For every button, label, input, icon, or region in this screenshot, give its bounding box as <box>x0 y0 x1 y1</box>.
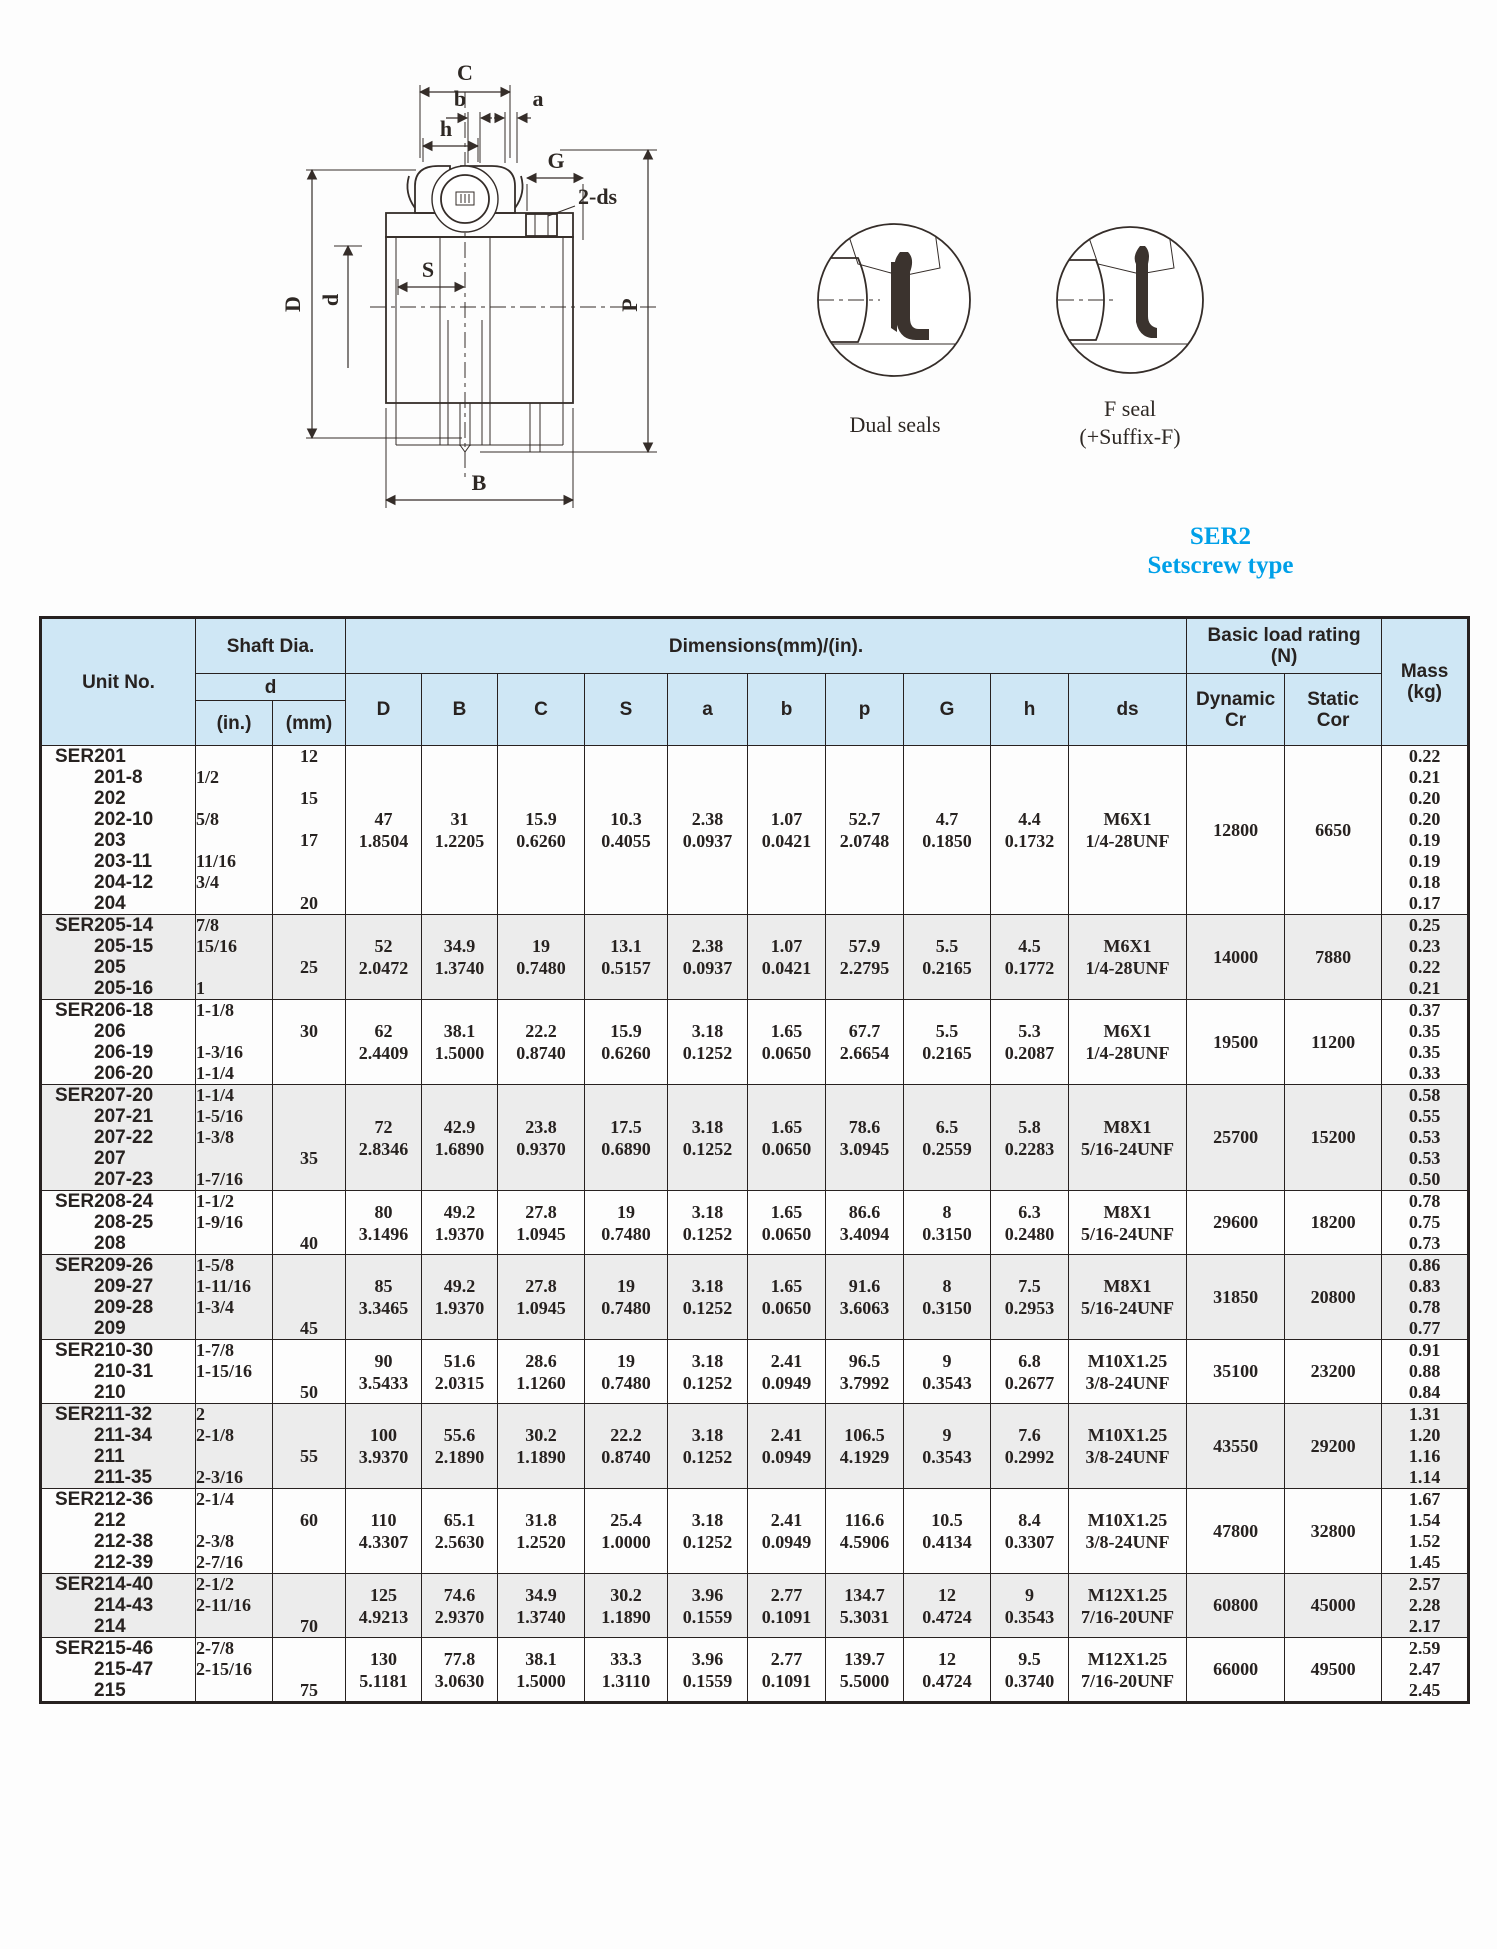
dim-value: 2.38 <box>668 935 747 957</box>
cell-line: 0.20 <box>1382 788 1467 809</box>
dynamic-cr-cell: 43550 <box>1187 1404 1285 1489</box>
cell-line <box>273 1552 345 1573</box>
dim-cell-p: 57.92.2795 <box>826 915 904 1000</box>
dim-cell-p: 96.53.7992 <box>826 1340 904 1404</box>
dim-label-2ds: 2-ds <box>578 184 618 209</box>
series-subtitle: Setscrew type <box>1098 551 1343 580</box>
table-header: Unit No. Shaft Dia. Dimensions(mm)/(in).… <box>41 618 1469 746</box>
cell-line: 206-19 <box>42 1042 195 1063</box>
dim-value: 2.1890 <box>422 1446 497 1468</box>
cell-line: 207-22 <box>42 1127 195 1148</box>
dim-value: 0.3543 <box>904 1446 990 1468</box>
cell-line: 15/16 <box>196 936 272 957</box>
dim-cell-h: 4.40.1732 <box>991 746 1069 915</box>
dynamic-line1: Dynamic <box>1187 689 1284 710</box>
cell-line <box>273 1169 345 1190</box>
dim-cell-G: 5.50.2165 <box>904 1000 991 1085</box>
dim-value: 15.9 <box>498 808 584 830</box>
dim-value: 3.0945 <box>826 1138 903 1160</box>
cell-line <box>196 1021 272 1042</box>
dim-value: 1/4-28UNF <box>1069 830 1186 852</box>
static-cor-cell: 45000 <box>1285 1574 1382 1638</box>
dynamic-cr-cell: 19500 <box>1187 1000 1285 1085</box>
dim-value: 0.7480 <box>585 1223 667 1245</box>
dim-cell-p: 134.75.3031 <box>826 1574 904 1638</box>
cell-line <box>273 1659 345 1680</box>
shaft-dia-mm-cell: 45 <box>273 1255 346 1340</box>
dim-value: 2.5630 <box>422 1531 497 1553</box>
dim-value: 0.1252 <box>668 1042 747 1064</box>
dim-value: 80 <box>346 1201 421 1223</box>
dim-cell-a: 3.960.1559 <box>668 1638 748 1703</box>
dim-cell-D: 471.8504 <box>346 746 422 915</box>
dim-cell-h: 5.30.2087 <box>991 1000 1069 1085</box>
table-row: SER212-36212212-38212-392-1/42-3/82-7/16… <box>41 1489 1469 1574</box>
dim-value: 55.6 <box>422 1424 497 1446</box>
dim-value: 9 <box>904 1350 990 1372</box>
cell-line <box>273 1063 345 1084</box>
cell-line: 20 <box>273 893 345 914</box>
mass-cell: 0.910.880.84 <box>1382 1340 1469 1404</box>
col-header-G: G <box>904 674 991 746</box>
dim-value: 5.8 <box>991 1116 1068 1138</box>
dim-value: 3/8-24UNF <box>1069 1446 1186 1468</box>
dim-value: 38.1 <box>422 1020 497 1042</box>
dim-value: 0.5157 <box>585 957 667 979</box>
dim-value: 3.6063 <box>826 1297 903 1319</box>
dim-value: 0.0937 <box>668 957 747 979</box>
cell-line: 204 <box>42 893 195 914</box>
dim-value: M8X1 <box>1069 1275 1186 1297</box>
dynamic-cr-cell: 47800 <box>1187 1489 1285 1574</box>
dim-value: 0.4724 <box>904 1606 990 1628</box>
cell-line: 1.54 <box>1382 1510 1467 1531</box>
static-cor-cell: 15200 <box>1285 1085 1382 1191</box>
dim-cell-B: 49.21.9370 <box>422 1191 498 1255</box>
cell-line <box>273 1340 345 1361</box>
cell-line: 40 <box>273 1233 345 1254</box>
cell-line: 1-1/4 <box>196 1063 272 1084</box>
dim-value: 3/8-24UNF <box>1069 1372 1186 1394</box>
dim-cell-S: 190.7480 <box>585 1191 668 1255</box>
dim-value: 0.2165 <box>904 957 990 979</box>
cell-line: 2.47 <box>1382 1659 1467 1680</box>
dim-value: 2.77 <box>748 1584 825 1606</box>
dim-value: 23.8 <box>498 1116 584 1138</box>
cell-line: 0.86 <box>1382 1255 1467 1276</box>
mass-cell: 0.370.350.350.33 <box>1382 1000 1469 1085</box>
cell-line: 205-16 <box>42 978 195 999</box>
shaft-dia-in-cell: 1-1/81-3/161-1/4 <box>196 1000 273 1085</box>
dim-value: 2.9370 <box>422 1606 497 1628</box>
dim-value: 0.0650 <box>748 1042 825 1064</box>
dim-cell-b: 2.770.1091 <box>748 1638 826 1703</box>
spec-table-body: SER201201-8202202-10203203-11204-122041/… <box>41 746 1469 1703</box>
dim-cell-h: 6.30.2480 <box>991 1191 1069 1255</box>
cell-line <box>273 1574 345 1595</box>
dim-value: 1.5000 <box>422 1042 497 1064</box>
dim-value: 3.9370 <box>346 1446 421 1468</box>
dim-value: 1.07 <box>748 808 825 830</box>
dim-value: 85 <box>346 1275 421 1297</box>
dim-cell-D: 1003.9370 <box>346 1404 422 1489</box>
cell-line <box>196 893 272 914</box>
cell-line <box>273 1000 345 1021</box>
cell-line: 212-38 <box>42 1531 195 1552</box>
cell-line: 0.83 <box>1382 1276 1467 1297</box>
series-title: SER2 <box>1098 522 1343 551</box>
shaft-dia-mm-cell: 12151720 <box>273 746 346 915</box>
cell-line: 1.52 <box>1382 1531 1467 1552</box>
dim-value: 3.18 <box>668 1201 747 1223</box>
dim-cell-p: 116.64.5906 <box>826 1489 904 1574</box>
dim-value: 0.0421 <box>748 830 825 852</box>
dim-value: 0.1091 <box>748 1606 825 1628</box>
dim-cell-p: 91.63.6063 <box>826 1255 904 1340</box>
table-row: SER210-30210-312101-7/81-15/1650903.5433… <box>41 1340 1469 1404</box>
dim-value: 1.9370 <box>422 1297 497 1319</box>
dim-cell-h: 4.50.1772 <box>991 915 1069 1000</box>
dim-value: 3.18 <box>668 1509 747 1531</box>
static-cor-cell: 6650 <box>1285 746 1382 915</box>
cell-line: 214-43 <box>42 1595 195 1616</box>
col-header-h: h <box>991 674 1069 746</box>
dim-cell-b: 1.650.0650 <box>748 1255 826 1340</box>
dim-value: M10X1.25 <box>1069 1350 1186 1372</box>
cell-line: 211 <box>42 1446 195 1467</box>
dim-cell-ds: M10X1.253/8-24UNF <box>1069 1340 1187 1404</box>
dim-cell-D: 1305.1181 <box>346 1638 422 1703</box>
dim-cell-a: 3.180.1252 <box>668 1000 748 1085</box>
dim-value: 125 <box>346 1584 421 1606</box>
dim-value: 27.8 <box>498 1275 584 1297</box>
dim-value: 5.5 <box>904 935 990 957</box>
table-row: SER208-24208-252081-1/21-9/1640803.14964… <box>41 1191 1469 1255</box>
dim-value: 2.41 <box>748 1424 825 1446</box>
cell-line: 30 <box>273 1021 345 1042</box>
col-header-dimensions: Dimensions(mm)/(in). <box>346 618 1187 674</box>
cell-line: 203 <box>42 830 195 851</box>
dim-label-h: h <box>440 116 452 141</box>
dim-cell-C: 27.81.0945 <box>498 1255 585 1340</box>
cell-line: 1-1/8 <box>196 1000 272 1021</box>
cell-line <box>273 1489 345 1510</box>
shaft-dia-in-cell: 7/815/161 <box>196 915 273 1000</box>
dim-cell-S: 190.7480 <box>585 1255 668 1340</box>
cell-line <box>273 809 345 830</box>
cell-line: SER210-30 <box>42 1340 195 1361</box>
cell-line: 45 <box>273 1318 345 1339</box>
dual-seals-caption: Dual seals <box>849 412 940 437</box>
dim-cell-C: 15.90.6260 <box>498 746 585 915</box>
dim-value: 5/16-24UNF <box>1069 1297 1186 1319</box>
unit-no-cell: SER210-30210-31210 <box>41 1340 196 1404</box>
dim-cell-b: 2.410.0949 <box>748 1340 826 1404</box>
dim-cell-a: 2.380.0937 <box>668 915 748 1000</box>
static-cor-cell: 49500 <box>1285 1638 1382 1703</box>
cell-line: 0.35 <box>1382 1021 1467 1042</box>
dim-value: 0.2165 <box>904 1042 990 1064</box>
dim-cell-h: 5.80.2283 <box>991 1085 1069 1191</box>
cell-line: 202-10 <box>42 809 195 830</box>
dim-cell-D: 722.8346 <box>346 1085 422 1191</box>
dim-value: 4.1929 <box>826 1446 903 1468</box>
dim-value: 12 <box>904 1584 990 1606</box>
dim-value: 38.1 <box>498 1648 584 1670</box>
dim-value: 1.1260 <box>498 1372 584 1394</box>
cell-line: 215 <box>42 1680 195 1701</box>
cell-line: 50 <box>273 1382 345 1403</box>
dim-value: 4.7 <box>904 808 990 830</box>
dim-cell-B: 65.12.5630 <box>422 1489 498 1574</box>
dynamic-cr-cell: 66000 <box>1187 1638 1285 1703</box>
cell-line: 209 <box>42 1318 195 1339</box>
dim-cell-h: 7.50.2953 <box>991 1255 1069 1340</box>
dim-value: 7/16-20UNF <box>1069 1670 1186 1692</box>
dim-cell-h: 8.40.3307 <box>991 1489 1069 1574</box>
dim-value: 22.2 <box>498 1020 584 1042</box>
dim-cell-S: 25.41.0000 <box>585 1489 668 1574</box>
cell-line: 214 <box>42 1616 195 1637</box>
col-header-B: B <box>422 674 498 746</box>
cell-line: 0.88 <box>1382 1361 1467 1382</box>
inner-ring-cylinder <box>386 237 573 452</box>
dim-value: M8X1 <box>1069 1201 1186 1223</box>
shaft-dia-in-cell: 1-1/21-9/16 <box>196 1191 273 1255</box>
dim-cell-a: 3.180.1252 <box>668 1085 748 1191</box>
shaft-dia-mm-cell: 25 <box>273 915 346 1000</box>
dim-cell-ds: M10X1.253/8-24UNF <box>1069 1404 1187 1489</box>
dim-value: 1.3740 <box>498 1606 584 1628</box>
dim-cell-S: 33.31.3110 <box>585 1638 668 1703</box>
col-header-p: p <box>826 674 904 746</box>
cell-line <box>273 978 345 999</box>
dim-value: 0.0949 <box>748 1446 825 1468</box>
dim-label-D: D <box>280 296 305 312</box>
dim-value: 74.6 <box>422 1584 497 1606</box>
cell-line <box>273 851 345 872</box>
dim-value: 19 <box>585 1201 667 1223</box>
dim-cell-S: 30.21.1890 <box>585 1574 668 1638</box>
dim-value: M8X1 <box>1069 1116 1186 1138</box>
dim-cell-G: 6.50.2559 <box>904 1085 991 1191</box>
static-cor-cell: 11200 <box>1285 1000 1382 1085</box>
dim-value: 6.3 <box>991 1201 1068 1223</box>
cell-line: SER208-24 <box>42 1191 195 1212</box>
cell-line <box>273 1085 345 1106</box>
cell-line: 204-12 <box>42 872 195 893</box>
dim-value: 30.2 <box>498 1424 584 1446</box>
load-rating-line1: Basic load rating <box>1187 625 1381 646</box>
table-row: SER205-14205-15205205-167/815/16125522.0… <box>41 915 1469 1000</box>
cell-line: 1.31 <box>1382 1404 1467 1425</box>
col-header-static-cor: Static Cor <box>1285 674 1382 746</box>
col-header-mm: (mm) <box>273 701 346 746</box>
cell-line <box>273 1042 345 1063</box>
dim-cell-ds: M8X15/16-24UNF <box>1069 1191 1187 1255</box>
dim-value: 3.4094 <box>826 1223 903 1245</box>
dynamic-line2: Cr <box>1187 710 1284 731</box>
unit-no-cell: SER212-36212212-38212-39 <box>41 1489 196 1574</box>
cell-line: 212 <box>42 1510 195 1531</box>
mass-cell: 0.580.550.530.530.50 <box>1382 1085 1469 1191</box>
dim-value: 3.7992 <box>826 1372 903 1394</box>
cell-line: 209-27 <box>42 1276 195 1297</box>
dynamic-cr-cell: 60800 <box>1187 1574 1285 1638</box>
dim-label-S: S <box>422 257 434 282</box>
dim-cell-ds: M6X11/4-28UNF <box>1069 746 1187 915</box>
cell-line: SER201 <box>42 746 195 767</box>
dim-value: 5.3031 <box>826 1606 903 1628</box>
dim-value: 8 <box>904 1275 990 1297</box>
unit-no-cell: SER215-46215-47215 <box>41 1638 196 1703</box>
cell-line: SER205-14 <box>42 915 195 936</box>
dim-cell-ds: M8X15/16-24UNF <box>1069 1085 1187 1191</box>
cell-line <box>273 1404 345 1425</box>
shaft-dia-mm-cell: 40 <box>273 1191 346 1255</box>
cell-line <box>273 1467 345 1488</box>
dim-cell-G: 90.3543 <box>904 1404 991 1489</box>
dim-label-C: C <box>457 60 473 85</box>
dim-value: 67.7 <box>826 1020 903 1042</box>
cell-line: 0.75 <box>1382 1212 1467 1233</box>
dim-value: 96.5 <box>826 1350 903 1372</box>
col-header-mass: Mass (kg) <box>1382 618 1469 746</box>
cell-line <box>273 1276 345 1297</box>
cell-line: 2 <box>196 1404 272 1425</box>
dim-value: 2.8346 <box>346 1138 421 1160</box>
table-row: SER206-18206206-19206-201-1/81-3/161-1/4… <box>41 1000 1469 1085</box>
dim-value: 1.65 <box>748 1020 825 1042</box>
dim-value: 3.18 <box>668 1275 747 1297</box>
cell-line: 1 <box>196 978 272 999</box>
series-title-block: SER2 Setscrew type <box>1098 522 1343 580</box>
dim-value: 34.9 <box>498 1584 584 1606</box>
dim-value: 134.7 <box>826 1584 903 1606</box>
dim-value: 0.2480 <box>991 1223 1068 1245</box>
cell-line: 215-47 <box>42 1659 195 1680</box>
cell-line: 207-23 <box>42 1169 195 1190</box>
dim-cell-B: 42.91.6890 <box>422 1085 498 1191</box>
cell-line: 0.58 <box>1382 1085 1467 1106</box>
cell-line <box>273 1595 345 1616</box>
cell-line: 1-5/8 <box>196 1255 272 1276</box>
dim-b: b <box>446 86 492 163</box>
shaft-dia-mm-cell: 75 <box>273 1638 346 1703</box>
cell-line: 202 <box>42 788 195 809</box>
unit-no-cell: SER207-20207-21207-22207207-23 <box>41 1085 196 1191</box>
col-header-shaft-dia: Shaft Dia. <box>196 618 346 674</box>
dim-value: 0.2992 <box>991 1446 1068 1468</box>
dim-value: 9 <box>904 1424 990 1446</box>
cell-line: 1-7/16 <box>196 1169 272 1190</box>
dim-value: 0.1252 <box>668 1297 747 1319</box>
dim-value: 6.5 <box>904 1116 990 1138</box>
dim-cell-b: 1.650.0650 <box>748 1191 826 1255</box>
dim-value: 0.0949 <box>748 1531 825 1553</box>
dim-cell-S: 22.20.8740 <box>585 1404 668 1489</box>
dim-cell-G: 10.50.4134 <box>904 1489 991 1574</box>
dual-seals-detail: Dual seals <box>810 222 974 437</box>
dim-value: 0.4134 <box>904 1531 990 1553</box>
cell-line: 25 <box>273 957 345 978</box>
dim-value: 1.3740 <box>422 957 497 979</box>
cell-line: 11/16 <box>196 851 272 872</box>
dim-value: 2.77 <box>748 1648 825 1670</box>
dim-value: 110 <box>346 1509 421 1531</box>
mass-cell: 0.250.230.220.21 <box>1382 915 1469 1000</box>
mass-cell: 1.671.541.521.45 <box>1382 1489 1469 1574</box>
dim-cell-B: 38.11.5000 <box>422 1000 498 1085</box>
col-header-load-rating: Basic load rating (N) <box>1187 618 1382 674</box>
col-header-S: S <box>585 674 668 746</box>
dim-cell-b: 2.770.1091 <box>748 1574 826 1638</box>
dim-value: 19 <box>585 1350 667 1372</box>
cell-line: 212-39 <box>42 1552 195 1573</box>
cell-line: 0.77 <box>1382 1318 1467 1339</box>
dim-value: 2.2795 <box>826 957 903 979</box>
cell-line: 15 <box>273 788 345 809</box>
cell-line <box>196 1233 272 1254</box>
cell-line: 2-7/16 <box>196 1552 272 1573</box>
dim-value: 1.65 <box>748 1201 825 1223</box>
cell-line <box>273 1212 345 1233</box>
cell-line: SER211-32 <box>42 1404 195 1425</box>
dim-value: 2.0748 <box>826 830 903 852</box>
unit-no-cell: SER211-32211-34211211-35 <box>41 1404 196 1489</box>
dim-value: 3.18 <box>668 1116 747 1138</box>
dim-value: M10X1.25 <box>1069 1424 1186 1446</box>
cell-line: 1-9/16 <box>196 1212 272 1233</box>
dim-value: 8 <box>904 1201 990 1223</box>
dynamic-cr-cell: 25700 <box>1187 1085 1285 1191</box>
dim-value: 0.1732 <box>991 830 1068 852</box>
dim-cell-S: 190.7480 <box>585 1340 668 1404</box>
cell-line: 1-3/4 <box>196 1297 272 1318</box>
dim-value: M6X1 <box>1069 935 1186 957</box>
col-header-D: D <box>346 674 422 746</box>
dim-value: 33.3 <box>585 1648 667 1670</box>
cell-line: 1.67 <box>1382 1489 1467 1510</box>
col-header-a: a <box>668 674 748 746</box>
cell-line: 0.78 <box>1382 1297 1467 1318</box>
cell-line: 210 <box>42 1382 195 1403</box>
dim-value: 25.4 <box>585 1509 667 1531</box>
cell-line: 17 <box>273 830 345 851</box>
cell-line <box>273 1127 345 1148</box>
cell-line: 7/8 <box>196 915 272 936</box>
dim-cell-ds: M6X11/4-28UNF <box>1069 1000 1187 1085</box>
dim-value: 139.7 <box>826 1648 903 1670</box>
dim-value: 52.7 <box>826 808 903 830</box>
shaft-dia-in-cell: 2-1/22-11/16 <box>196 1574 273 1638</box>
dim-value: 4.5 <box>991 935 1068 957</box>
dim-cell-h: 7.60.2992 <box>991 1404 1069 1489</box>
dim-value: 0.8740 <box>585 1446 667 1468</box>
dim-value: 1.1890 <box>498 1446 584 1468</box>
unit-no-cell: SER214-40214-43214 <box>41 1574 196 1638</box>
dim-cell-a: 3.180.1252 <box>668 1191 748 1255</box>
shaft-dia-in-cell: 1/25/811/163/4 <box>196 746 273 915</box>
cell-line: 2-1/2 <box>196 1574 272 1595</box>
dim-value: 0.3150 <box>904 1297 990 1319</box>
shaft-dia-in-cell: 1-5/81-11/161-3/4 <box>196 1255 273 1340</box>
dim-value: 0.3740 <box>991 1670 1068 1692</box>
cell-line: 0.22 <box>1382 957 1467 978</box>
f-seal-detail: F seal (+Suffix-F) <box>1050 225 1206 449</box>
dynamic-cr-cell: 31850 <box>1187 1255 1285 1340</box>
dim-value: 0.1850 <box>904 830 990 852</box>
